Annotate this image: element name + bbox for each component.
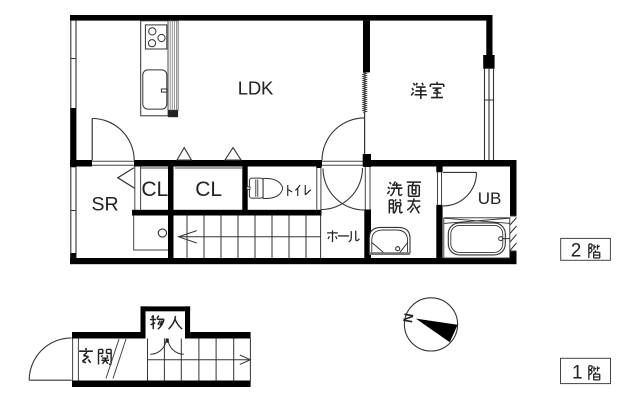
svg-text:SR: SR: [91, 194, 118, 216]
svg-text:1: 1: [572, 363, 583, 384]
svg-text:UB: UB: [478, 189, 502, 208]
svg-text:LDK: LDK: [238, 77, 274, 98]
svg-text:2: 2: [571, 241, 582, 262]
svg-text:CL: CL: [195, 178, 222, 201]
svg-text:CL: CL: [141, 178, 168, 201]
